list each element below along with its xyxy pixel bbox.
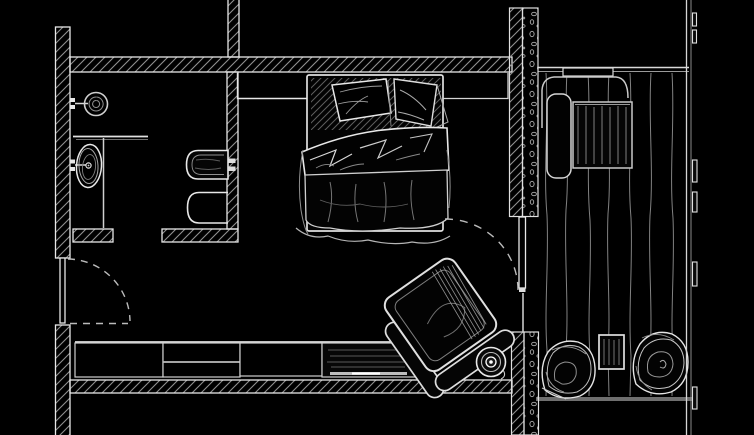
- wall-left-lower: [56, 325, 71, 435]
- console-sideboard: [75, 342, 418, 377]
- console-section-1: [75, 343, 163, 377]
- lounge-chair-right: [633, 332, 688, 393]
- wall-stub-top: [228, 0, 239, 57]
- terrace-side-table: [599, 335, 624, 369]
- wall-bathroom-stub-left: [73, 229, 113, 242]
- wall-top: [70, 57, 512, 72]
- wall-left-upper: [56, 27, 71, 258]
- wall-bathroom-stub-right: [162, 229, 238, 242]
- toilet: [187, 151, 236, 180]
- floor-plan-drawing: [0, 0, 754, 435]
- terrace-door-leaf: [519, 217, 526, 288]
- terrace-bench: [547, 94, 571, 178]
- stone-wall-column-lower: [512, 332, 539, 435]
- terrace-wall-shelf: [563, 68, 613, 76]
- console-section-2: [163, 343, 240, 377]
- terrace-table: [573, 102, 632, 168]
- floor-plan-stage: [0, 0, 754, 435]
- lounge-chair-left: [542, 341, 595, 399]
- entry-door-leaf: [60, 258, 65, 323]
- pillow-left: [332, 79, 391, 121]
- stone-wall-column-upper: [510, 8, 539, 217]
- console-section-3: [240, 343, 322, 376]
- duvet-body: [305, 170, 448, 231]
- double-bed: [296, 75, 450, 244]
